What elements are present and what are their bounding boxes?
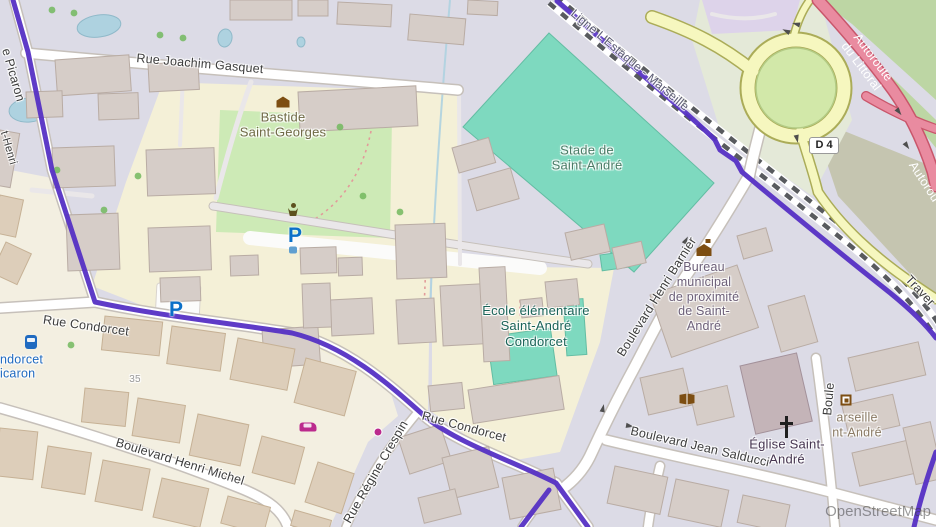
tree: [68, 342, 75, 349]
building: [98, 93, 139, 120]
building: [230, 0, 292, 20]
building: [298, 0, 328, 16]
road-ref-shield: D 4: [809, 137, 839, 154]
tree: [157, 32, 164, 39]
building: [467, 0, 498, 16]
building: [479, 267, 510, 362]
tree: [135, 173, 142, 180]
building: [338, 257, 363, 276]
roundabout-island: [756, 48, 836, 128]
tree: [397, 209, 404, 216]
building: [148, 61, 199, 92]
building: [81, 388, 128, 426]
building: [167, 326, 226, 371]
map-render-layer: [0, 0, 936, 527]
map-canvas[interactable]: Rue Joachim Gasquete Picaront-HenriRue C…: [0, 0, 936, 527]
building: [55, 55, 131, 96]
building: [230, 255, 259, 276]
pond: [297, 37, 305, 47]
building: [337, 2, 392, 27]
building: [298, 86, 418, 132]
building: [160, 277, 201, 302]
building: [148, 226, 211, 272]
building: [0, 428, 38, 480]
building: [396, 298, 436, 344]
building: [302, 283, 332, 328]
building: [330, 298, 374, 336]
building: [41, 446, 91, 494]
sports-pitch: [563, 299, 587, 356]
building: [146, 148, 216, 196]
building: [428, 382, 465, 411]
building: [95, 460, 150, 510]
tree: [71, 10, 78, 17]
building: [408, 14, 466, 45]
building: [300, 247, 337, 274]
building: [52, 146, 115, 188]
tree: [180, 35, 187, 42]
building: [101, 316, 162, 356]
tree: [49, 7, 56, 14]
tree: [360, 193, 367, 200]
tree: [337, 124, 344, 131]
tree: [101, 207, 108, 214]
building: [395, 223, 447, 279]
building: [26, 91, 63, 118]
building: [520, 298, 544, 318]
building: [545, 279, 580, 308]
osm-attribution-link[interactable]: OpenStreetMap: [825, 503, 931, 520]
building: [132, 398, 185, 443]
